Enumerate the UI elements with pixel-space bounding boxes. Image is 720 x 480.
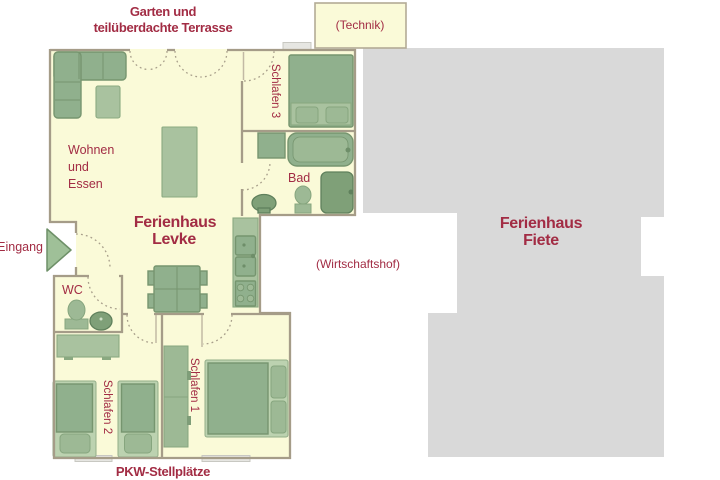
burner: [247, 284, 254, 291]
wc-toilet-bowl: [68, 300, 85, 320]
toilet-tank: [295, 204, 311, 213]
desk-foot: [102, 357, 111, 360]
technik-label: (Technik): [336, 18, 385, 32]
kitchen-faucet: [251, 254, 255, 258]
pillow: [125, 434, 152, 453]
single-bed-mattress: [57, 384, 93, 432]
single-bed-mattress: [122, 384, 155, 432]
wc-sink-drain: [100, 318, 103, 321]
burner: [247, 295, 254, 302]
technik-box: (Technik): [315, 3, 406, 48]
wardrobe-knob: [187, 416, 191, 425]
chair: [200, 294, 207, 308]
label-wc: WC: [62, 283, 83, 297]
label-eingang: Eingang: [0, 240, 43, 254]
fiete-building-outline: [363, 48, 664, 457]
coffee-table: [162, 127, 197, 197]
wc-sink: [90, 312, 112, 330]
chair: [200, 271, 207, 285]
bath-sink-base: [258, 208, 270, 213]
floor-plan-svg: (Technik): [0, 0, 720, 480]
pillow: [296, 107, 318, 123]
label-garden-line2: teilüberdachte Terrasse: [94, 20, 233, 35]
label-wohnen-line2: und: [68, 160, 89, 174]
double-bed-mattress: [208, 363, 268, 434]
burner: [237, 295, 244, 302]
label-fiete-line1: Ferienhaus: [500, 215, 583, 232]
window-top: [283, 43, 311, 50]
sink-drain: [242, 264, 245, 267]
schlafen1-furniture: [164, 346, 288, 447]
shower: [321, 172, 353, 213]
shower-handle: [349, 190, 354, 195]
pillow: [326, 107, 348, 123]
label-schlafen1: Schlafen 1: [188, 358, 200, 412]
kitchen: [233, 218, 258, 307]
label-schlafen3: Schlafen 3: [269, 64, 281, 118]
pillow: [60, 434, 90, 453]
label-wohnen-line1: Wohnen: [68, 143, 114, 157]
label-fiete-line2: Fiete: [523, 232, 559, 249]
washing-machine: [258, 133, 285, 158]
floor-plan: (Technik): [0, 0, 720, 480]
toilet-bowl: [295, 186, 311, 204]
entrance-arrow: [47, 229, 71, 271]
label-schlafen2: Schlafen 2: [101, 380, 113, 434]
pillow: [271, 366, 286, 398]
label-garden-line1: Garten und: [130, 4, 197, 19]
label-bad: Bad: [288, 171, 310, 185]
dining-set: [148, 266, 207, 312]
armchair: [96, 86, 120, 118]
label-pkw: PKW-Stellplätze: [116, 464, 210, 479]
desk: [57, 335, 119, 357]
bathtub-faucet: [346, 148, 351, 153]
label-wohnen-line3: Essen: [68, 177, 103, 191]
label-levke-line1: Ferienhaus: [134, 214, 217, 231]
schlafen3-furniture: [289, 55, 353, 127]
pillow: [271, 401, 286, 433]
desk-foot: [64, 357, 73, 360]
label-levke-line2: Levke: [152, 231, 196, 248]
bathtub-inner: [293, 137, 348, 162]
corner-sofa-side: [54, 52, 81, 118]
label-wirtschaftshof: (Wirtschaftshof): [316, 257, 400, 271]
sink-drain: [242, 243, 245, 246]
burner: [237, 284, 244, 291]
